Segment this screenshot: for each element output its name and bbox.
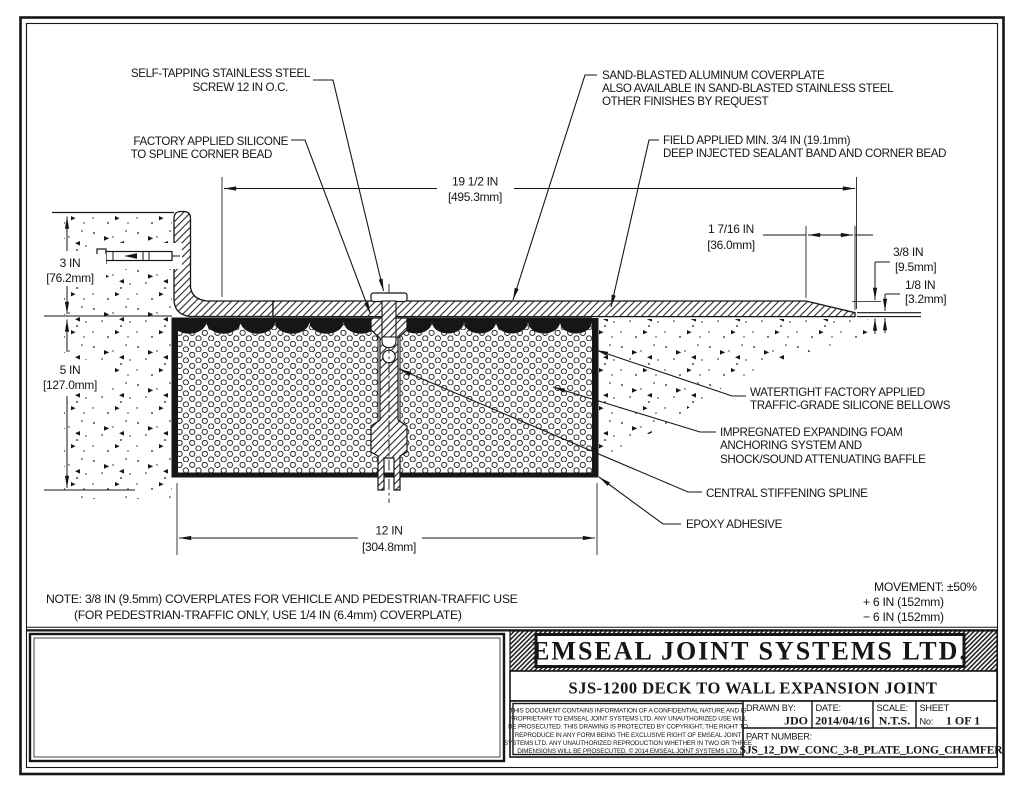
epoxy-band-left: [172, 318, 179, 473]
notes-box: [30, 634, 504, 761]
coverplate-body: [273, 301, 855, 317]
dim-plate-thickness-in: 3/8 IN: [893, 245, 923, 259]
steel-angle: [174, 212, 273, 317]
dim-joint-depth-mm: [127.0mm]: [43, 378, 97, 392]
dim-joint-width-in: 12 IN: [375, 524, 402, 538]
dim-joint-depth-in: 5 IN: [60, 363, 81, 377]
callout-spline-line1: CENTRAL STIFFENING SPLINE: [706, 487, 868, 500]
movement-line3: − 6 IN (152mm): [863, 610, 944, 624]
note-line2: (FOR PEDESTRIAN-TRAFFIC ONLY, USE 1/4 IN…: [74, 608, 462, 622]
scale-cell: SCALE: N.T.S.: [877, 703, 911, 728]
callout-epoxy-line1: EPOXY ADHESIVE: [686, 518, 783, 531]
dim-edge-thickness-in: 1/8 IN: [905, 278, 935, 292]
dim-joint-width-mm: [304.8mm]: [362, 540, 416, 554]
dim-chamfer-length: 1 7/16 IN [36.0mm]: [707, 222, 873, 310]
legal-line3: BE PROSECUTED. THIS DRAWING IS PROTECTED…: [508, 724, 748, 731]
dim-overall-width-in: 19 1/2 IN: [452, 175, 498, 189]
dim-joint-width: 12 IN [304.8mm]: [177, 483, 597, 555]
callout-sealant: FIELD APPLIED MIN. 3/4 IN (19.1mm) DEEP …: [611, 134, 946, 307]
drawing-title: SJS-1200 DECK TO WALL EXPANSION JOINT: [569, 679, 938, 698]
callout-bellows-line2: TRAFFIC-GRADE SILICONE BELLOWS: [750, 399, 951, 412]
legal-line4: REPRODUCE IN ANY FORM BEING THE EXCLUSIV…: [515, 732, 742, 739]
title-block: EMSEAL JOINT SYSTEMS LTD. SJS-1200 DECK …: [504, 631, 1003, 757]
note-line1: NOTE: 3/8 IN (9.5mm) COVERPLATES FOR VEH…: [46, 592, 518, 606]
screw-head: [371, 293, 407, 302]
scale-label: SCALE:: [877, 703, 908, 713]
callout-silicone-line2: TO SPLINE CORNER BEAD: [131, 148, 272, 161]
dim-chamfer-mm: [36.0mm]: [707, 238, 755, 252]
callout-silicone-line1: FACTORY APPLIED SILICONE: [133, 135, 288, 148]
drawn-by-label: DRAWN BY:: [746, 703, 795, 713]
callout-screw-line1: SELF-TAPPING STAINLESS STEEL: [131, 67, 311, 80]
legal-line1: THIS DOCUMENT CONTAINS INFORMATION OF A …: [510, 708, 746, 715]
main-drawing: 19 1/2 IN [495.3mm] 12 IN [304.8mm] 3 IN…: [30, 67, 977, 624]
foam-block-left: [178, 320, 378, 474]
callout-coverplate-line2: ALSO AVAILABLE IN SAND-BLASTED STAINLESS…: [602, 82, 894, 95]
callout-epoxy: EPOXY ADHESIVE: [599, 477, 783, 531]
dim-wall-leg-mm: [76.2mm]: [46, 271, 94, 285]
sheet-no-label: No:: [920, 717, 934, 727]
legal-line6: DIMENSIONS WILL BE PROSECUTED. © 2014 EM…: [517, 747, 739, 755]
legal-line2: PROPRIETARY TO EMSEAL JOINT SYSTEMS LTD.…: [509, 716, 747, 723]
callout-coverplate: SAND-BLASTED ALUMINUM COVERPLATE ALSO AV…: [513, 69, 894, 300]
dim-edge-thickness-mm: [3.2mm]: [905, 292, 946, 306]
callout-sealant-line1: FIELD APPLIED MIN. 3/4 IN (19.1mm): [663, 134, 851, 147]
foam-block-right: [400, 320, 592, 474]
callout-coverplate-line3: OTHER FINISHES BY REQUEST: [602, 95, 769, 108]
movement-line2: + 6 IN (152mm): [863, 595, 944, 609]
dim-chamfer-in: 1 7/16 IN: [708, 222, 754, 236]
part-number-label: PART NUMBER:: [746, 732, 812, 742]
epoxy-band-right: [592, 318, 599, 473]
callout-bellows-line1: WATERTIGHT FACTORY APPLIED: [750, 386, 925, 399]
epoxy-band-bottom: [172, 473, 599, 478]
bolt-shaft: [106, 252, 172, 261]
scale-value: N.T.S.: [879, 714, 910, 728]
callout-foam-line1: IMPREGNATED EXPANDING FOAM: [720, 426, 902, 439]
sheet-label: SHEET: [920, 703, 950, 713]
note-block: NOTE: 3/8 IN (9.5mm) COVERPLATES FOR VEH…: [46, 592, 518, 622]
legal-line5: SYSTEMS LTD. ANY UNAUTHORIZED REPRODUCTI…: [504, 740, 752, 747]
callout-foam-line3: SHOCK/SOUND ATTENUATING BAFFLE: [720, 453, 926, 466]
screw-shaft: [382, 301, 396, 337]
callout-foam-line2: ANCHORING SYSTEM AND: [720, 439, 862, 452]
drawing-sheet: 19 1/2 IN [495.3mm] 12 IN [304.8mm] 3 IN…: [0, 0, 1024, 791]
company-name: EMSEAL JOINT SYSTEMS LTD.: [532, 637, 968, 666]
dim-wall-leg-in: 3 IN: [60, 256, 81, 270]
dim-edge-thickness: 1/8 IN [3.2mm]: [885, 278, 946, 333]
callout-screw-line2: SCREW 12 IN O.C.: [192, 81, 288, 94]
date-label: DATE:: [816, 703, 841, 713]
movement-line1: MOVEMENT: ±50%: [874, 580, 977, 594]
movement-block: MOVEMENT: ±50% + 6 IN (152mm) − 6 IN (15…: [863, 580, 977, 624]
part-number-value: SJS_12_DW_CONC_3-8_PLATE_LONG_CHAMFER: [740, 745, 1004, 757]
engineering-drawing: 19 1/2 IN [495.3mm] 12 IN [304.8mm] 3 IN…: [0, 0, 1024, 791]
drawn-by-value: JDO: [784, 714, 808, 728]
callout-coverplate-line1: SAND-BLASTED ALUMINUM COVERPLATE: [602, 69, 825, 82]
dim-overall-width-mm: [495.3mm]: [448, 190, 502, 204]
screw-tip: [382, 337, 396, 348]
coverplate: [273, 301, 855, 317]
dim-plate-thickness-mm: [9.5mm]: [895, 260, 936, 274]
callout-sealant-line2: DEEP INJECTED SEALANT BAND AND CORNER BE…: [663, 147, 946, 160]
dim-overall-width: 19 1/2 IN [495.3mm]: [222, 175, 857, 310]
date-value: 2014/04/16: [815, 714, 870, 728]
sheet-value: 1 OF 1: [946, 714, 980, 728]
legal-text: THIS DOCUMENT CONTAINS INFORMATION OF A …: [504, 708, 752, 756]
